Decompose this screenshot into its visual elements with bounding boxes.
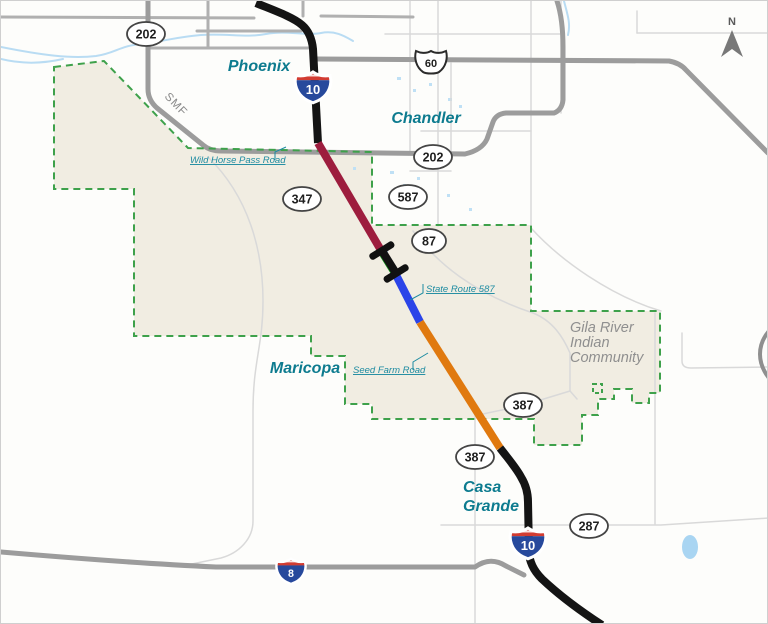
city-label-casa-grande-line2: Grande	[463, 498, 519, 515]
svg-text:347: 347	[292, 193, 313, 207]
route-shield-202-e: 202	[414, 145, 452, 169]
gila-river-label-line3: Community	[570, 350, 644, 366]
city-label-phoenix: Phoenix	[228, 58, 291, 75]
svg-text:10: 10	[521, 538, 535, 553]
north-arrow-label: N	[728, 16, 736, 28]
city-label-casa-grande-line1: Casa	[463, 479, 501, 496]
svg-text:202: 202	[423, 151, 444, 165]
svg-text:287: 287	[579, 520, 600, 534]
route-shield-us60: 60	[415, 51, 446, 74]
city-label-chandler: Chandler	[391, 110, 461, 127]
svg-text:60: 60	[425, 58, 437, 70]
svg-text:387: 387	[465, 451, 486, 465]
svg-text:8: 8	[288, 568, 294, 580]
svg-text:387: 387	[513, 399, 534, 413]
svg-text:587: 587	[398, 191, 419, 205]
gila-river-label-line2: Indian	[570, 335, 610, 351]
svg-text:202: 202	[136, 28, 157, 42]
route-shield-387-south: 387	[456, 445, 494, 469]
city-label-maricopa: Maricopa	[270, 360, 340, 377]
state-route-587-label: State Route 587	[426, 284, 495, 295]
route-shield-347: 347	[283, 187, 321, 211]
gila-river-label-line1: Gila River	[570, 320, 635, 336]
route-shield-287: 287	[570, 514, 608, 538]
svg-text:87: 87	[422, 235, 436, 249]
route-shield-202-nw: 202	[127, 22, 165, 46]
corridor-map: SMF Wild Horse Pass Road State Route 587…	[0, 0, 768, 624]
route-shield-587: 587	[389, 185, 427, 209]
seed-farm-road-label: Seed Farm Road	[353, 365, 426, 376]
route-shield-387-north: 387	[504, 393, 542, 417]
svg-text:10: 10	[306, 82, 320, 97]
route-shield-87: 87	[412, 229, 446, 253]
lake	[682, 535, 698, 559]
wild-horse-pass-road-label: Wild Horse Pass Road	[190, 155, 286, 166]
